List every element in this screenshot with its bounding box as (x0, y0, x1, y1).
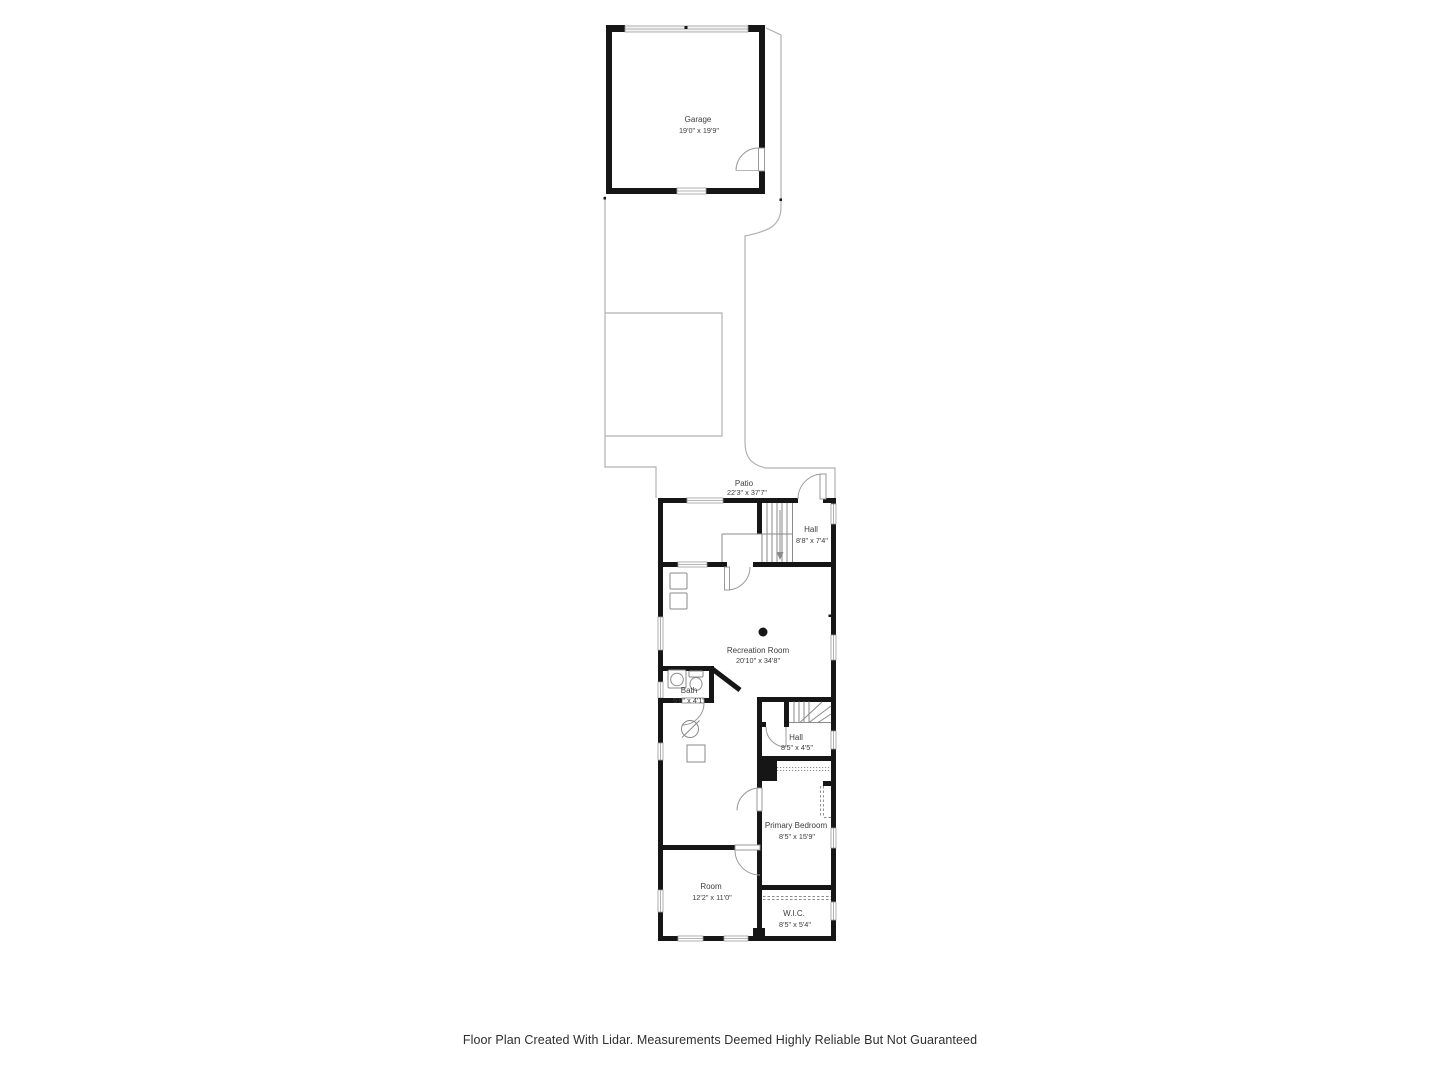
wic-dims: 8'5" x 5'4" (779, 920, 811, 929)
window-right-wic (831, 902, 836, 920)
patio: Patio 22'3" x 37'7" (604, 28, 836, 498)
window-right-hall-lower (831, 731, 836, 749)
garage-dims: 19'0" x 19'9" (679, 126, 719, 135)
bath-label: Bath (681, 686, 697, 695)
patio-label: Patio (735, 479, 754, 488)
window-left-rec (658, 617, 663, 650)
stairs-lower (789, 702, 831, 723)
wic-label: W.I.C. (783, 909, 805, 918)
floor-plan-page: Garage 19'0" x 19'9" Patio 22'3" x 37'7" (0, 0, 1440, 1080)
window-top (687, 498, 723, 503)
garage-window (677, 188, 706, 194)
angled-wall (711, 668, 740, 690)
hall-lower-label: Hall (789, 733, 803, 742)
dryer-icon (670, 593, 687, 609)
garage: Garage 19'0" x 19'9" (606, 25, 765, 194)
primary-bedroom-label: Primary Bedroom (765, 821, 828, 830)
patio-entry-door (798, 474, 826, 499)
floor-plan-drawing: Garage 19'0" x 19'9" Patio 22'3" x 37'7" (0, 0, 1440, 1080)
room-dims: 12'2" x 11'0" (692, 893, 732, 902)
bath-dims: 5'9" x 4'1" (673, 696, 705, 705)
bedroom-door (737, 788, 762, 811)
window-left-rec2 (658, 743, 663, 760)
recreation-room-label: Recreation Room (727, 646, 790, 655)
recreation-room-dims: 20'10" x 34'8" (736, 656, 780, 665)
window-bottom-room2 (724, 936, 748, 941)
hall-lower-dims: 8'5" x 4'5" (781, 743, 813, 752)
garage-label: Garage (685, 115, 712, 124)
garage-side-door (736, 148, 765, 171)
hall-to-rec-door (725, 567, 751, 590)
hall-upper-dims: 8'8" x 7'4" (796, 536, 828, 545)
support-column (759, 628, 768, 637)
window-bottom-room1 (678, 936, 703, 941)
room-label: Room (700, 882, 722, 891)
room-door (735, 845, 760, 875)
window-left-room (658, 890, 663, 912)
utility-box-icon (687, 745, 705, 762)
footer-disclaimer: Floor Plan Created With Lidar. Measureme… (0, 1033, 1440, 1047)
primary-bedroom-dims: 8'5" x 15'9" (779, 832, 815, 841)
washer-icon (670, 573, 687, 589)
window-left-bath (658, 682, 663, 698)
window-right-rec (831, 635, 836, 660)
window-right-hall-upper (831, 504, 836, 524)
patio-dims: 22'3" x 37'7" (727, 488, 767, 497)
window-interior (678, 562, 707, 567)
chimney-block (762, 761, 777, 781)
room-labels: Hall 8'8" x 7'4" Recreation Room 20'10" … (673, 525, 828, 929)
window-right-bedroom (831, 828, 836, 848)
hall-upper-label: Hall (804, 525, 818, 534)
